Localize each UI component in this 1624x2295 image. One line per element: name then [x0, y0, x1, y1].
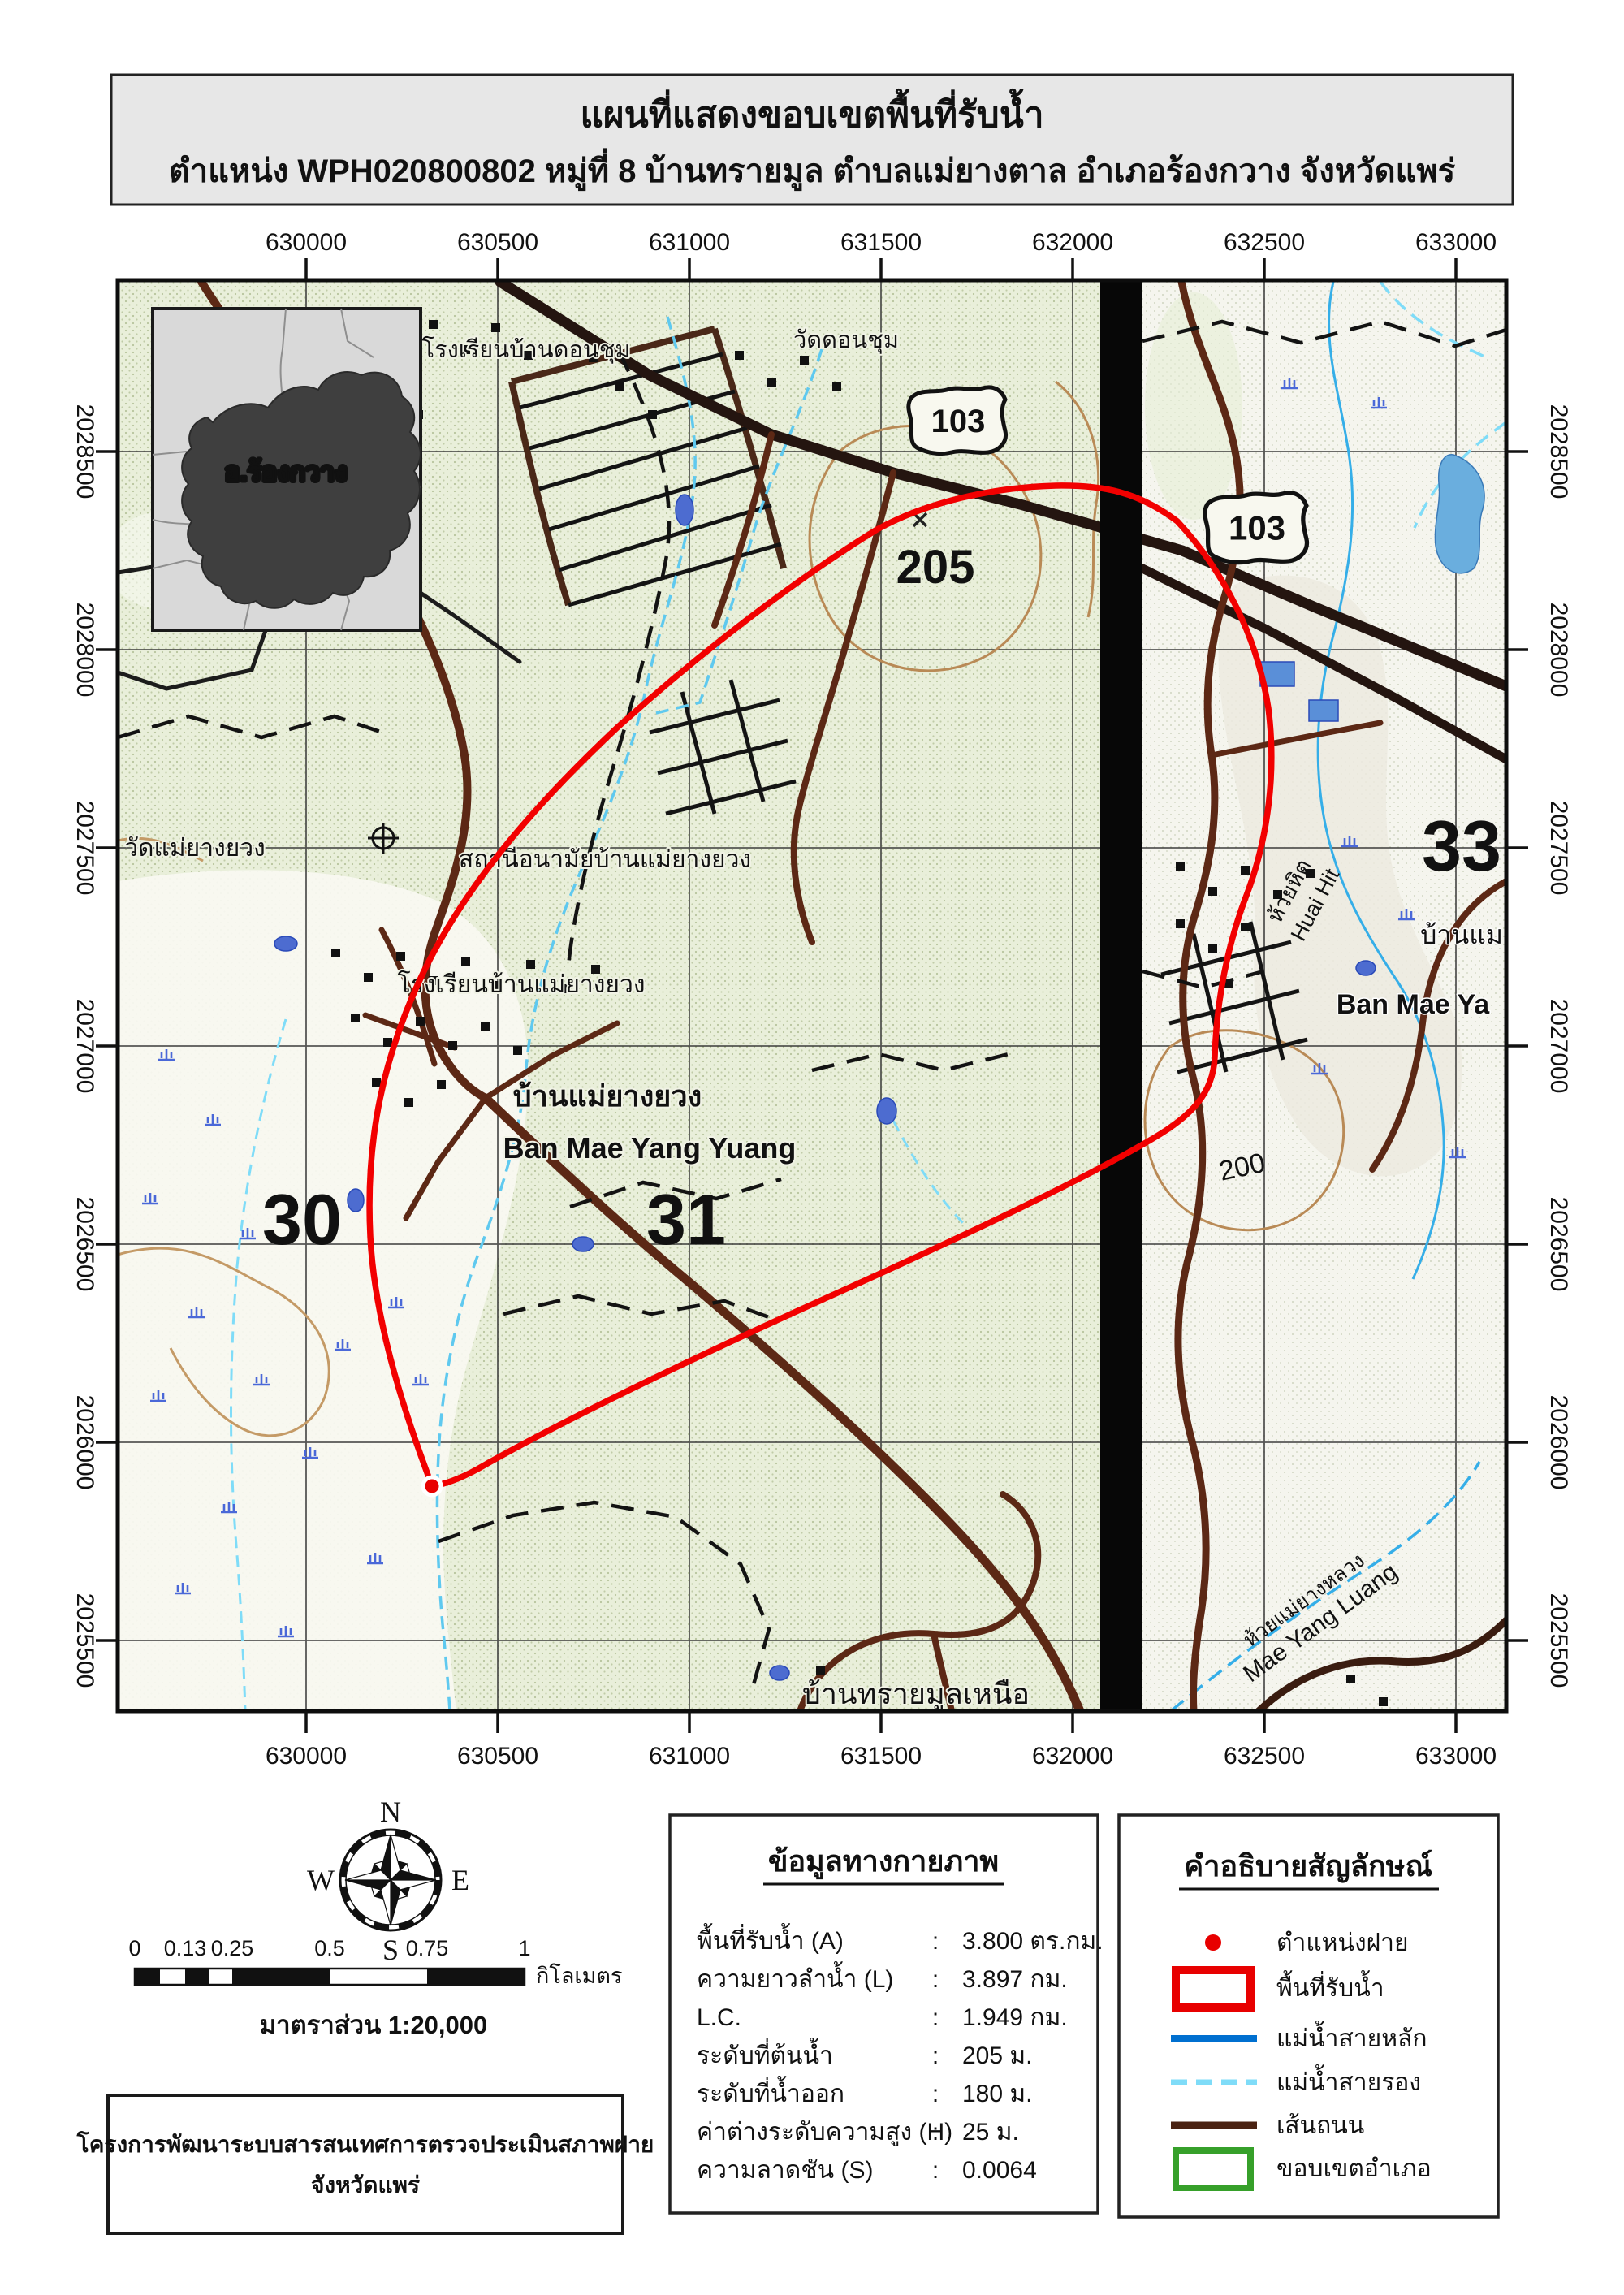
row-value: 1.949 กม. — [962, 2004, 1068, 2031]
legend-item-label: แม่น้ำสายรอง — [1276, 2064, 1421, 2096]
label-ban-sai-mun: บ้านทรายมูลเหนือ — [802, 1677, 1030, 1712]
legend-item-label: ขอบเขตอำเภอ — [1276, 2155, 1432, 2182]
northing-label: 2027000 — [1545, 999, 1572, 1094]
route-number: 103 — [931, 404, 986, 439]
row-separator: : — [932, 2042, 939, 2069]
row-value: 0.0064 — [962, 2157, 1037, 2184]
label-ban-mae-thai: บ้านแม — [1420, 920, 1503, 949]
row-label: ระดับที่น้ำออก — [697, 2076, 844, 2107]
northing-label: 2027500 — [71, 801, 98, 896]
northing-label: 2026000 — [71, 1395, 98, 1490]
northing-label: 2027000 — [71, 999, 98, 1094]
label-grid-31: 31 — [646, 1179, 726, 1260]
legend-box: คำอธิบายสัญลักษณ์ ตำแหน่งฝาย พื้นที่รับน… — [1119, 1815, 1498, 2217]
scale-tick: 0 — [128, 1936, 140, 1960]
row-separator: : — [932, 1928, 939, 1955]
easting-label: 631000 — [649, 1743, 730, 1770]
northing-label: 2026500 — [1545, 1197, 1572, 1292]
axis-labels-right: 2028500 2028000 2027500 2027000 2026500 … — [1545, 404, 1572, 1688]
easting-label: 631500 — [840, 229, 922, 256]
easting-label: 632000 — [1032, 1743, 1113, 1770]
compass-e: E — [451, 1864, 469, 1896]
scale-unit: กิโลเมตร — [536, 1964, 622, 1988]
scale-tick-labels: 0 0.13 0.25 0.5 0.75 1 — [128, 1936, 530, 1960]
scale-bar: 0 0.13 0.25 0.5 0.75 1 กิโลเมตร มาตราส่ว… — [128, 1936, 622, 2039]
easting-label: 630000 — [266, 1743, 347, 1770]
row-separator: : — [932, 2081, 939, 2107]
axis-labels-bottom: 630000 630500 631000 631500 632000 63250… — [266, 1743, 1497, 1770]
label-grid-30: 30 — [262, 1179, 342, 1260]
easting-label: 630000 — [266, 229, 347, 256]
title-box: แผนที่แสดงขอบเขตพื้นที่รับน้ำ ตำแหน่ง WP… — [111, 75, 1513, 205]
row-label: ระดับที่ต้นน้ำ — [697, 2038, 833, 2069]
easting-label: 630500 — [457, 229, 538, 256]
scale-ratio: มาตราส่วน 1:20,000 — [260, 2011, 488, 2039]
easting-label: 632500 — [1224, 229, 1305, 256]
inset-district-label: อ.ร้องกวาง — [224, 457, 347, 486]
row-separator: : — [932, 1966, 939, 1993]
axis-labels-top: 630000 630500 631000 631500 632000 63250… — [266, 229, 1497, 256]
easting-label: 632500 — [1224, 1743, 1305, 1770]
label-school-mae-yang-yuang: โรงเรียนบ้านแม่ยางยวง — [398, 970, 646, 998]
compass-w: W — [307, 1864, 335, 1896]
row-label: ความลาดชัน (S) — [697, 2157, 873, 2184]
physical-data-box: ข้อมูลทางกายภาพ พื้นที่รับน้ำ (A) : 3.80… — [670, 1815, 1104, 2213]
scale-tick: 0.13 — [164, 1936, 207, 1960]
scale-bar-segments — [135, 1969, 525, 1985]
northing-label: 2028500 — [1545, 404, 1572, 499]
easting-label: 633000 — [1415, 229, 1497, 256]
scale-tick: 0.5 — [314, 1936, 345, 1960]
legend-item-label: แม่น้ำสายหลัก — [1276, 2021, 1427, 2052]
inset-locator-map: อ.ร้องกวาง — [153, 309, 421, 630]
project-line1: โครงการพัฒนาระบบสารสนเทศการตรวจประเมินสภ… — [76, 2130, 654, 2157]
axis-labels-left: 2028500 2028000 2027500 2027000 2026500 … — [71, 404, 98, 1688]
legend-title: คำอธิบายสัญลักษณ์ — [1184, 1849, 1432, 1883]
compass-n: N — [380, 1796, 401, 1828]
northing-label: 2026500 — [71, 1197, 98, 1292]
map-title-line1: แผนที่แสดงขอบเขตพื้นที่รับน้ำ — [580, 88, 1043, 135]
label-spot-205: 205 — [896, 541, 975, 594]
route-103-shield-left: 103 — [909, 387, 1006, 454]
label-wat-don-chum: วัดดอนชุม — [793, 327, 899, 354]
label-grid-33: 33 — [1422, 806, 1501, 886]
label-village-thai: บ้านแม่ยางยวง — [513, 1079, 702, 1113]
row-separator: : — [932, 2119, 939, 2146]
label-wat-mae-yang-yuang: วัดแม่ยางยวง — [124, 835, 266, 862]
row-label: L.C. — [697, 2004, 741, 2031]
label-village-eng: Ban Mae Yang Yuang — [503, 1131, 797, 1165]
easting-label: 631500 — [840, 1743, 922, 1770]
row-label: พื้นที่รับน้ำ (A) — [697, 1923, 844, 1955]
legend-item-label: เส้นถนน — [1276, 2112, 1364, 2139]
scale-tick: 0.75 — [406, 1936, 449, 1960]
legend-weir-symbol — [1205, 1934, 1221, 1951]
row-value: 25 ม. — [962, 2119, 1019, 2146]
physical-data-title: ข้อมูลทางกายภาพ — [768, 1844, 999, 1880]
row-value: 205 ม. — [962, 2042, 1033, 2069]
northing-label: 2026000 — [1545, 1395, 1572, 1490]
row-label: ค่าต่างระดับความสูง (H) — [697, 2119, 952, 2146]
legend-item-label: ตำแหน่งฝาย — [1276, 1930, 1409, 1956]
northing-label: 2025500 — [1545, 1593, 1572, 1688]
legend-item-label: พื้นที่รับน้ำ — [1276, 1970, 1384, 2002]
row-value: 3.800 ตร.กม. — [962, 1928, 1104, 1955]
easting-label: 632000 — [1032, 229, 1113, 256]
northing-label: 2028000 — [1545, 603, 1572, 698]
map-title-line2: ตำแหน่ง WPH020800802 หมู่ที่ 8 บ้านทรายม… — [169, 148, 1456, 191]
label-ban-mae-eng: Ban Mae Ya — [1337, 989, 1490, 1020]
scale-tick: 1 — [518, 1936, 530, 1960]
route-103-shield-right: 103 — [1205, 493, 1307, 563]
map-sheet-page: แผนที่แสดงขอบเขตพื้นที่รับน้ำ ตำแหน่ง WP… — [0, 0, 1624, 2295]
row-value: 3.897 กม. — [962, 1966, 1068, 1993]
project-line2: จังหวัดแพร่ — [311, 2172, 420, 2198]
map-canvas: 103 103 โรงเรียนบ้านดอนชุม วัดดอนชุม 205… — [106, 280, 1506, 1712]
northing-label: 2027500 — [1545, 801, 1572, 896]
easting-label: 630500 — [457, 1743, 538, 1770]
northing-label: 2025500 — [71, 1593, 98, 1688]
row-label: ความยาวลำน้ำ (L) — [697, 1961, 893, 1993]
compass-s: S — [382, 1934, 399, 1966]
row-value: 180 ม. — [962, 2081, 1033, 2107]
row-separator: : — [932, 2004, 939, 2031]
project-box: โครงการพัฒนาระบบสารสนเทศการตรวจประเมินสภ… — [76, 2095, 654, 2233]
route-number: 103 — [1229, 509, 1285, 547]
map-document: แผนที่แสดงขอบเขตพื้นที่รับน้ำ ตำแหน่ง WP… — [0, 0, 1624, 2295]
weir-point — [423, 1477, 441, 1495]
scale-tick: 0.25 — [211, 1936, 254, 1960]
northing-label: 2028500 — [71, 404, 98, 499]
label-school-don-chum: โรงเรียนบ้านดอนชุม — [421, 335, 630, 364]
row-separator: : — [932, 2157, 939, 2184]
northing-label: 2028000 — [71, 603, 98, 698]
easting-label: 633000 — [1415, 1743, 1497, 1770]
easting-label: 631000 — [649, 229, 730, 256]
